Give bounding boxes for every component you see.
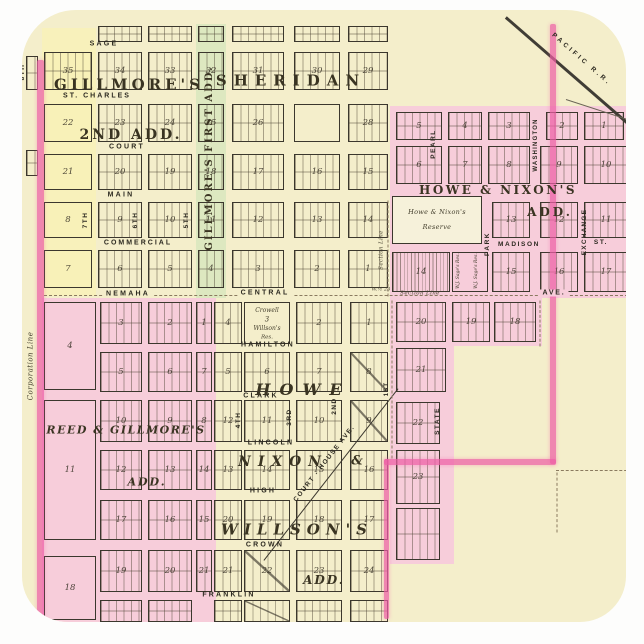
block-21: 21 <box>396 348 446 392</box>
block-stub <box>100 600 142 622</box>
block-21: 21 <box>44 154 92 190</box>
block-18: 18 <box>494 302 536 342</box>
block-stub <box>294 26 340 42</box>
block-26: 26 <box>232 104 284 142</box>
plat-title-howe-nixons: HOWE & NIXON'S <box>419 184 577 196</box>
block-number: 23 <box>115 119 126 128</box>
block-7: 7 <box>44 250 92 288</box>
block-3: 3 <box>488 112 530 140</box>
plat-title-nixon-ampersand: & <box>351 455 363 468</box>
street-label-court: COURT <box>109 144 145 151</box>
annotation-corporation-line: Corporation Line <box>28 332 35 401</box>
block-number: 35 <box>63 67 74 76</box>
block-13: 13 <box>492 202 530 238</box>
block-4: 4 <box>448 112 482 140</box>
block-1: 1 <box>196 302 212 344</box>
block-number: 13 <box>165 466 176 475</box>
street-label-st-charles: ST. CHARLES <box>63 93 131 100</box>
block-2: 2 <box>148 302 192 344</box>
block-number: 18 <box>510 318 521 327</box>
corporation-line-south-v <box>384 459 389 619</box>
block-17: 17 <box>232 154 284 190</box>
block-16: 16 <box>148 500 192 540</box>
street-label-franklin: FRANKLIN <box>202 592 255 599</box>
block-number: 5 <box>118 368 123 377</box>
block-number: 28 <box>363 119 374 128</box>
dash-southeast-h <box>556 470 626 471</box>
plat-title-2nd-add: 2ND ADD. <box>79 128 182 142</box>
plat-title-howe: HOWE <box>255 382 350 398</box>
block-number: 11 <box>601 216 612 225</box>
block-number: 6 <box>117 265 122 274</box>
block-stub <box>348 26 388 42</box>
street-label-crown: CROWN <box>246 542 284 549</box>
block-number: 4 <box>67 342 72 351</box>
block-number: 17 <box>253 168 264 177</box>
block-number: 8 <box>366 368 371 377</box>
block-stub <box>198 26 224 42</box>
plat-title-sheridan: SHERIDAN <box>216 74 366 89</box>
block-number: 21 <box>63 168 74 177</box>
block-number: 15 <box>506 268 517 277</box>
block-number: 4 <box>225 319 230 328</box>
block-number: 22 <box>63 119 74 128</box>
street-label-exchange: EXCHANGE <box>582 209 589 255</box>
block-21: 21 <box>196 550 212 592</box>
block-3: 3 <box>232 250 284 288</box>
block-number: 3 <box>506 122 511 131</box>
block-number: 6 <box>264 368 269 377</box>
plat-title-reed-gillmores-add: ADD. <box>127 477 166 488</box>
block-19: 19 <box>452 302 490 342</box>
block-number: 21 <box>223 567 234 576</box>
block-stub <box>392 196 482 244</box>
street-label-5th: 5TH <box>184 212 191 229</box>
block-number: 15 <box>199 516 210 525</box>
annotation-howe-nixons-reserve-1: Howe & Nixon's <box>408 209 466 216</box>
block-number: 34 <box>115 67 126 76</box>
block-number: 2 <box>316 319 321 328</box>
block-7: 7 <box>196 352 212 392</box>
block-20: 20 <box>148 550 192 592</box>
block-number: 7 <box>201 368 206 377</box>
block-number: 1 <box>201 319 206 328</box>
street-label-ave: AVE. <box>539 290 568 297</box>
block-number: 6 <box>416 161 421 170</box>
block-17: 17 <box>584 252 626 292</box>
block-number: 8 <box>65 216 70 225</box>
annotation-willsons-res-1: Willson's <box>253 326 280 332</box>
block-stub <box>296 600 342 622</box>
block-stub <box>214 600 242 622</box>
block-11: 11 <box>244 400 290 442</box>
plat-title-howe-nixons-add: ADD. <box>527 206 573 218</box>
street-label-2nd: 2ND <box>332 397 339 415</box>
block-number: 21 <box>416 366 427 375</box>
block-number: 7 <box>462 161 467 170</box>
block-14: 14 <box>392 252 450 292</box>
block-10: 10 <box>584 146 626 184</box>
sticker-canvas: 3534333231302922232425262821201918171615… <box>0 0 644 644</box>
block-number: 4 <box>462 122 467 131</box>
block-4: 4 <box>198 250 224 288</box>
block-stub <box>148 600 192 622</box>
block-24: 24 <box>350 550 388 592</box>
block-19: 19 <box>100 550 142 592</box>
street-label-7th: 7TH <box>83 212 90 229</box>
block-15: 15 <box>196 500 212 540</box>
street-label-hamilton: HAMILTON <box>241 342 295 349</box>
block-number: 5 <box>167 265 172 274</box>
block-6: 6 <box>148 352 192 392</box>
street-label-st: ST. <box>591 240 611 247</box>
block-11: 11 <box>584 202 626 238</box>
annotation-section-line-h: Section Line <box>400 291 440 297</box>
block-number: 8 <box>506 161 511 170</box>
block-number: 7 <box>316 368 321 377</box>
dash-state-col <box>392 301 393 459</box>
block-15: 15 <box>492 252 530 292</box>
block-number: 14 <box>363 216 374 225</box>
street-label-8th: 8TH <box>22 64 26 81</box>
block-12: 12 <box>232 202 284 238</box>
plat-title-willsons-add: ADD. <box>303 574 345 586</box>
street-label-madison: MADISON <box>495 242 543 249</box>
corporation-line-south-h <box>384 459 556 465</box>
block-stub <box>396 508 440 560</box>
block-number: 16 <box>312 168 323 177</box>
street-label-commercial: COMMERCIAL <box>104 240 172 247</box>
corporation-line-west <box>37 60 44 620</box>
block-number: 7 <box>65 265 70 274</box>
block-number: 24 <box>364 567 375 576</box>
plat-title-gillmores-first-add: GILLMORE'S FIRST ADD. <box>205 65 215 250</box>
street-label-pearl: PEARL <box>431 129 438 159</box>
block-number: 14 <box>416 268 427 277</box>
block-8: 8 <box>488 146 530 184</box>
annotation-crowell-block-number: 3 <box>265 317 269 324</box>
section-line-north <box>388 201 389 297</box>
block-number: 11 <box>65 466 76 475</box>
block-number: 18 <box>65 584 76 593</box>
block-number: 5 <box>416 122 421 131</box>
block-number: 13 <box>312 216 323 225</box>
block-number: 19 <box>466 318 477 327</box>
street-label-main: MAIN <box>108 192 135 199</box>
block-17: 17 <box>100 500 142 540</box>
annotation-half-section: W.½ 23 <box>372 288 391 293</box>
block-16: 16 <box>294 154 340 190</box>
block-9: 9 <box>540 146 578 184</box>
block-1: 1 <box>350 302 388 344</box>
block-number: 1 <box>366 319 371 328</box>
block-20: 20 <box>396 302 446 342</box>
block-number: 12 <box>223 417 234 426</box>
annotation-wj-sages-res-2: W.J. Sage's Res. <box>475 253 480 289</box>
street-label-4th: 4TH <box>236 412 243 429</box>
block-stub <box>244 600 290 622</box>
block-number: 10 <box>601 161 612 170</box>
block-number: 3 <box>255 265 260 274</box>
block-number: 2 <box>314 265 319 274</box>
block-18: 18 <box>44 556 96 620</box>
block-number: 6 <box>167 368 172 377</box>
block-number: 13 <box>506 216 517 225</box>
street-label-high: HIGH <box>250 488 276 495</box>
block-number: 20 <box>165 567 176 576</box>
block-19: 19 <box>148 154 192 190</box>
block-5: 5 <box>214 352 242 392</box>
block-2: 2 <box>296 302 342 344</box>
block-number: 19 <box>165 168 176 177</box>
block-number: 1 <box>365 265 370 274</box>
annotation-wj-sages-res-1: W.J. Sage's Res. <box>457 253 462 289</box>
block-number: 20 <box>115 168 126 177</box>
plat-title-gillmores: GILLMORE'S <box>54 78 204 93</box>
street-label-nemaha: NEMAHA <box>103 291 153 298</box>
block-11: 11 <box>44 400 96 540</box>
block-number: 26 <box>253 119 264 128</box>
block-stub <box>350 600 388 622</box>
block-7: 7 <box>448 146 482 184</box>
block-number: 24 <box>165 119 176 128</box>
dash-southeast-v <box>557 473 558 533</box>
block-16: 16 <box>540 252 578 292</box>
dash-east-boundary <box>540 301 541 347</box>
street-label-park: PARK <box>485 232 492 256</box>
block-number: 2 <box>167 319 172 328</box>
block-4: 4 <box>44 302 96 390</box>
block-28: 28 <box>348 104 388 142</box>
block-number: 17 <box>601 268 612 277</box>
block-number: 4 <box>208 265 213 274</box>
rr-label-pacific: PACIFIC R.R. <box>550 33 612 88</box>
block-13: 13 <box>294 202 340 238</box>
block-8: 8 <box>350 352 388 392</box>
block-number: 17 <box>116 516 127 525</box>
block-number: 3 <box>118 319 123 328</box>
block-stub <box>294 104 340 142</box>
block-stub <box>148 26 192 42</box>
block-number: 9 <box>556 161 561 170</box>
plat-title-reed-gillmores: REED & GILLMORE'S <box>46 425 205 436</box>
plat-map: 3534333231302922232425262821201918171615… <box>22 10 626 622</box>
block-number: 13 <box>223 466 234 475</box>
street-label-6th: 6TH <box>133 212 140 229</box>
block-number: 12 <box>116 466 127 475</box>
block-number: 11 <box>262 417 273 426</box>
block-2: 2 <box>294 250 340 288</box>
block-15: 15 <box>348 154 388 190</box>
block-3: 3 <box>100 302 142 344</box>
block-number: 16 <box>364 466 375 475</box>
block-number: 10 <box>314 417 325 426</box>
block-number: 14 <box>199 466 210 475</box>
block-number: 5 <box>225 368 230 377</box>
annotation-crowell: Crowell <box>255 308 279 314</box>
block-5: 5 <box>148 250 192 288</box>
plat-title-nixon: NIXON <box>238 455 328 469</box>
block-number: 33 <box>165 67 176 76</box>
street-label-sage: SAGE <box>90 41 119 48</box>
block-number: 15 <box>363 168 374 177</box>
block-number: 23 <box>413 473 424 482</box>
block-number: 21 <box>199 567 210 576</box>
block-number: 16 <box>165 516 176 525</box>
block-21: 21 <box>214 550 242 592</box>
block-5: 5 <box>100 352 142 392</box>
street-label-3rd: 3RD <box>287 408 294 426</box>
block-number: 2 <box>559 122 564 131</box>
block-number: 10 <box>165 216 176 225</box>
annotation-willsons-res-2: Res. <box>261 335 273 341</box>
corporation-line-washington <box>550 24 556 464</box>
block-number: 12 <box>253 216 264 225</box>
street-label-washington: WASHINGTON <box>533 118 539 171</box>
block-14: 14 <box>196 450 212 490</box>
block-number: 19 <box>116 567 127 576</box>
plat-title-willsons: WILLSON'S <box>221 523 373 538</box>
annotation-howe-nixons-reserve-2: Reserve <box>423 224 452 231</box>
block-number: 1 <box>601 122 606 131</box>
block-number: 9 <box>117 216 122 225</box>
street-label-1st: 1ST <box>384 382 390 397</box>
street-label-lincoln: LINCOLN <box>248 440 295 447</box>
street-label-central: CENTRAL <box>238 290 293 297</box>
block-20: 20 <box>98 154 142 190</box>
annotation-section-line-v: Section Line <box>379 230 385 270</box>
block-number: 22 <box>262 567 273 576</box>
block-number: 20 <box>416 318 427 327</box>
block-4: 4 <box>214 302 242 344</box>
street-label-state: STATE <box>435 407 442 435</box>
block-stub <box>232 26 284 42</box>
block-number: 22 <box>413 419 424 428</box>
block-6: 6 <box>98 250 142 288</box>
